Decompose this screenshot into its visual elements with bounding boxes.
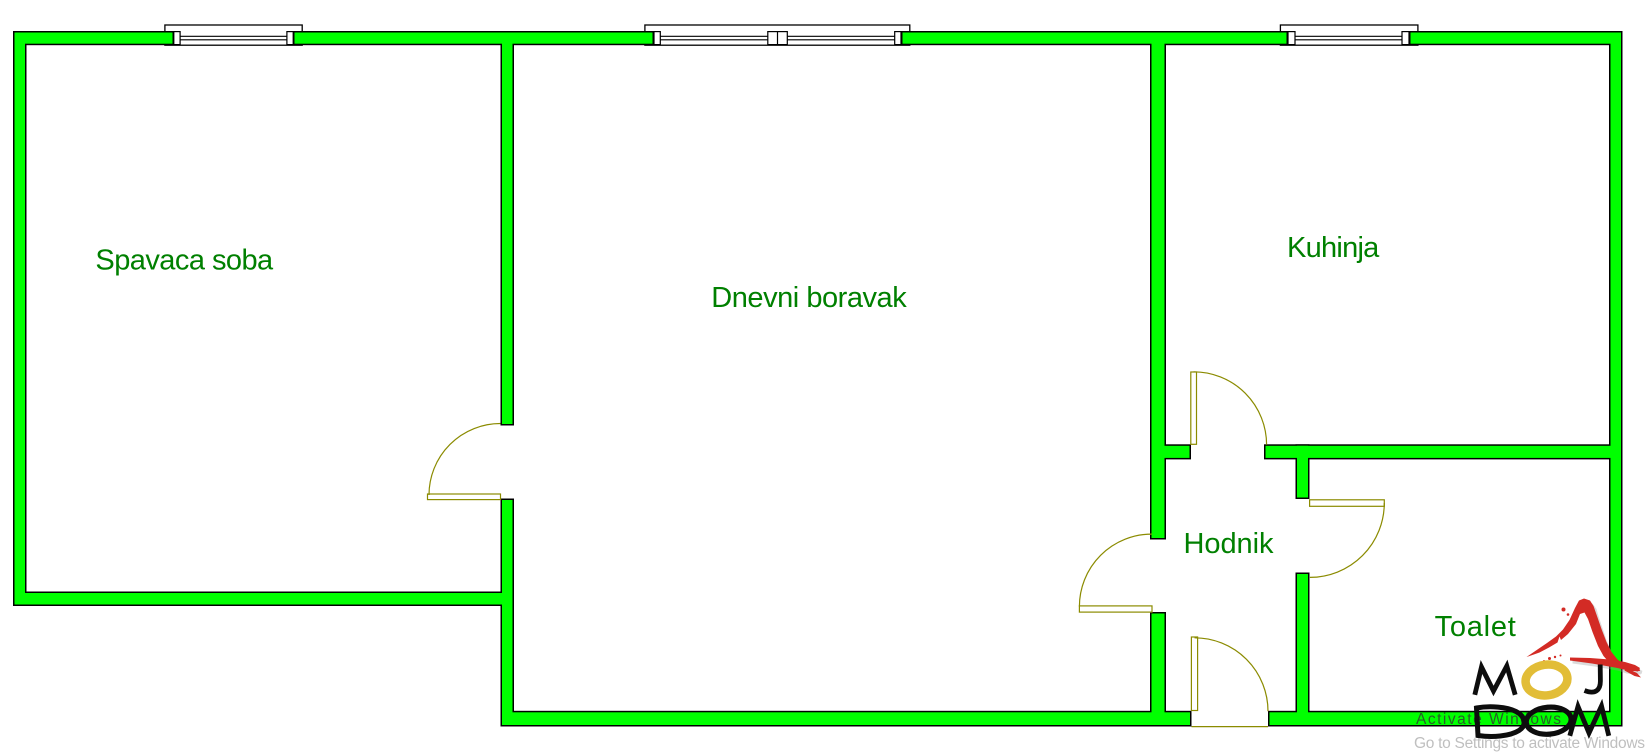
svg-text:Hodnik: Hodnik	[1184, 528, 1275, 560]
svg-text:Dnevni boravak: Dnevni boravak	[711, 282, 907, 314]
svg-text:Go to Settings to activate Win: Go to Settings to activate Windows	[1414, 735, 1645, 752]
svg-text:Kuhinja: Kuhinja	[1287, 232, 1380, 264]
svg-text:Toalet: Toalet	[1435, 611, 1516, 643]
svg-text:Spavaca soba: Spavaca soba	[95, 245, 274, 277]
